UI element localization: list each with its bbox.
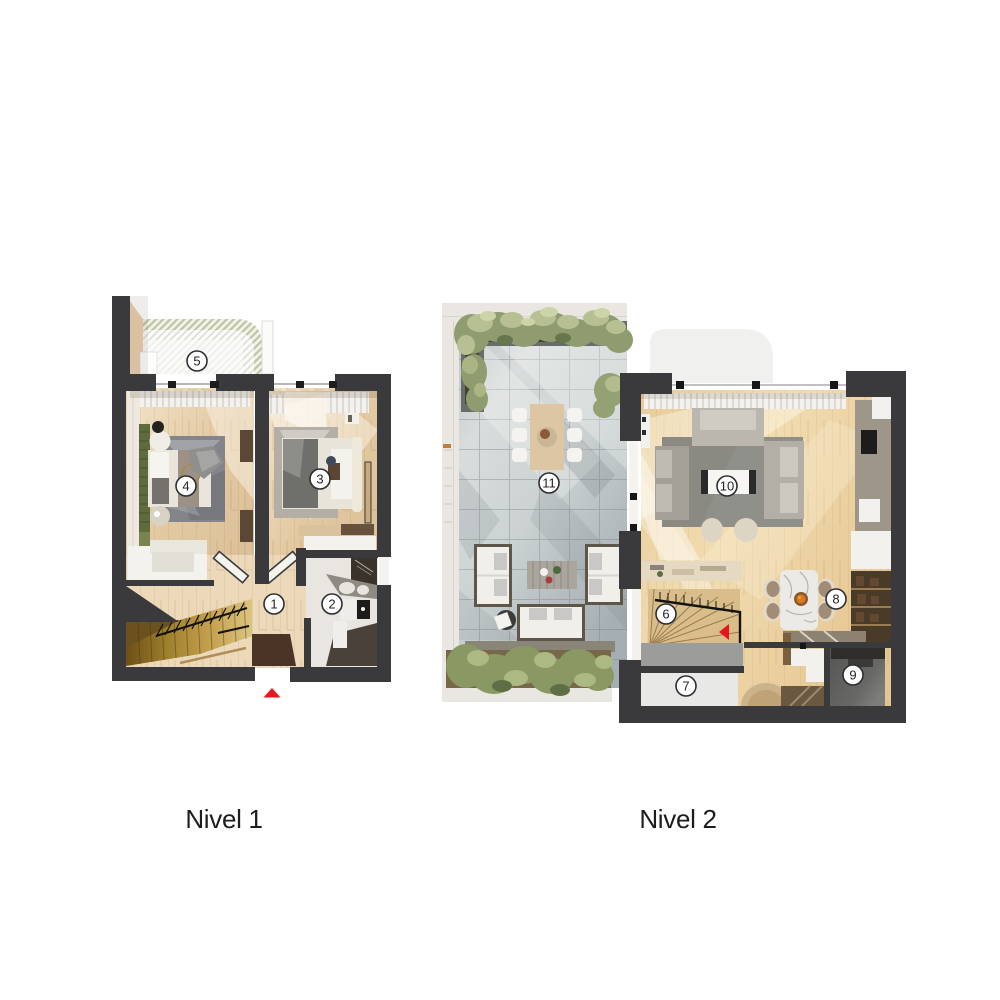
svg-text:1: 1	[270, 597, 277, 612]
svg-text:3: 3	[316, 472, 323, 487]
svg-text:5: 5	[193, 354, 200, 369]
svg-text:7: 7	[682, 679, 689, 694]
svg-text:6: 6	[662, 607, 669, 622]
svg-text:11: 11	[542, 476, 556, 491]
svg-text:8: 8	[832, 592, 839, 607]
svg-text:4: 4	[182, 479, 189, 494]
svg-text:Nivel 1: Nivel 1	[185, 804, 262, 834]
svg-text:10: 10	[720, 479, 734, 494]
svg-text:2: 2	[328, 597, 335, 612]
svg-text:9: 9	[849, 668, 856, 683]
svg-text:Nivel 2: Nivel 2	[639, 804, 716, 834]
